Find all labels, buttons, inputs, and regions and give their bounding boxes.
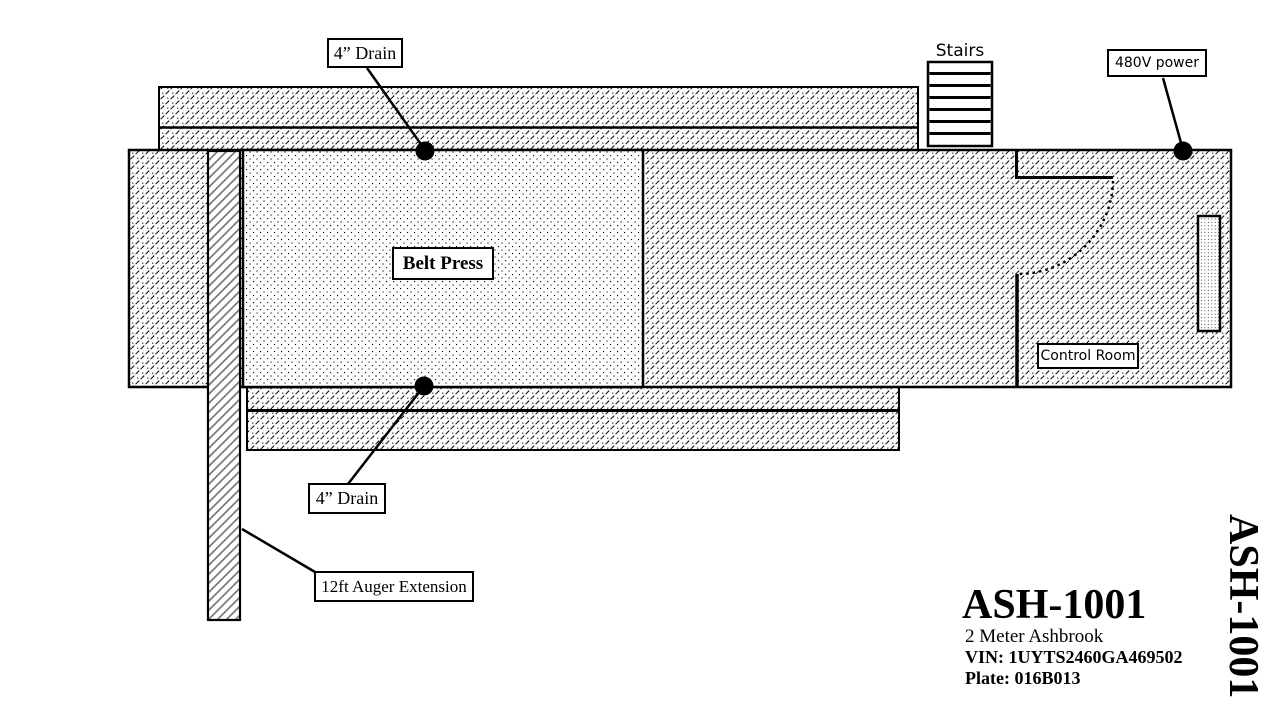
power-connection-point bbox=[1174, 142, 1193, 161]
title-block-vin: VIN: 1UYTS2460GA469502 bbox=[965, 648, 1183, 666]
drain-point-bottom bbox=[415, 377, 434, 396]
callout-drain-bottom: 4” Drain bbox=[308, 483, 386, 514]
floor-plan-drawing: 4” Drain 4” Drain 12ft Auger Extension 4… bbox=[0, 0, 1280, 720]
top-conveyor-bar bbox=[159, 87, 918, 150]
stairs-label: Stairs bbox=[926, 41, 994, 61]
control-room-label-box: Control Room bbox=[1037, 343, 1139, 369]
callout-auger-extension: 12ft Auger Extension bbox=[314, 571, 474, 602]
callout-drain-top: 4” Drain bbox=[327, 38, 403, 68]
callout-auger-extension-label: 12ft Auger Extension bbox=[321, 577, 466, 597]
control-room-label: Control Room bbox=[1041, 348, 1136, 364]
title-block-plate: Plate: 016B013 bbox=[965, 669, 1080, 687]
callout-480v-power: 480V power bbox=[1107, 49, 1207, 77]
electrical-panel bbox=[1198, 216, 1220, 331]
callout-drain-top-label: 4” Drain bbox=[334, 43, 396, 64]
side-model-label: ASH-1001 bbox=[1222, 514, 1264, 698]
leader-auger bbox=[242, 529, 315, 572]
callout-drain-bottom-label: 4” Drain bbox=[316, 488, 378, 509]
callout-480v-power-label: 480V power bbox=[1115, 55, 1199, 71]
belt-press-label: Belt Press bbox=[403, 253, 483, 275]
stairs-structure bbox=[928, 62, 992, 146]
leader-power bbox=[1163, 78, 1183, 150]
title-block-model: ASH-1001 bbox=[962, 584, 1146, 626]
drain-point-top bbox=[416, 142, 435, 161]
auger-tube bbox=[208, 151, 240, 620]
belt-press-label-box: Belt Press bbox=[392, 247, 494, 280]
title-block-description: 2 Meter Ashbrook bbox=[965, 627, 1103, 646]
bottom-conveyor-bar bbox=[247, 387, 899, 450]
